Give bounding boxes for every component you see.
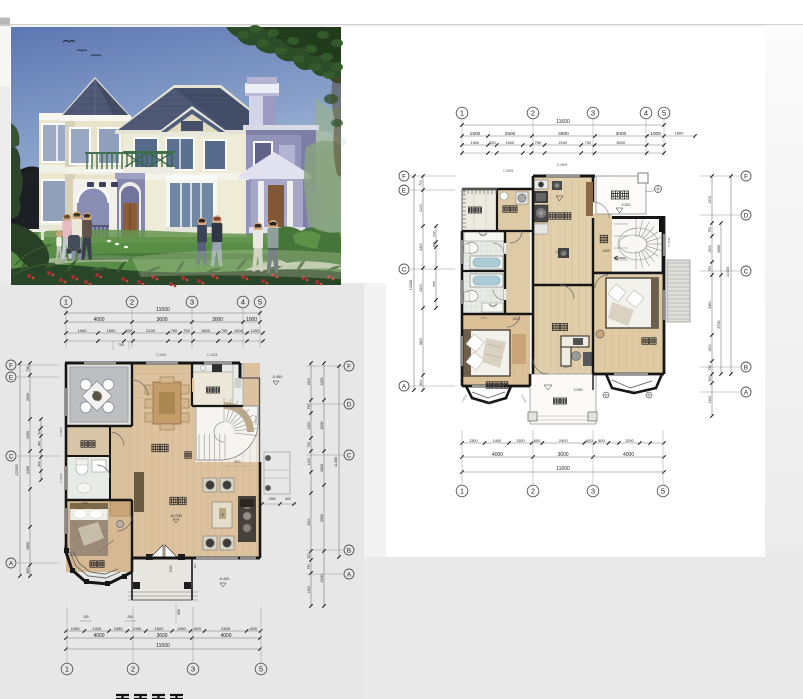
svg-text:±0.000: ±0.000 xyxy=(170,514,182,518)
svg-text:3.530: 3.530 xyxy=(574,388,583,392)
svg-text:1860: 1860 xyxy=(320,464,324,472)
svg-text:C-1518: C-1518 xyxy=(667,237,671,247)
svg-text:1500: 1500 xyxy=(307,422,311,430)
svg-text:-0.450: -0.450 xyxy=(219,577,230,581)
svg-text:2: 2 xyxy=(130,298,134,307)
svg-text:2100: 2100 xyxy=(559,140,568,145)
svg-text:500: 500 xyxy=(307,553,311,559)
svg-text:3: 3 xyxy=(591,109,595,118)
svg-text:930: 930 xyxy=(432,231,436,236)
svg-text:C-0815: C-0815 xyxy=(59,473,63,483)
svg-text:12200: 12200 xyxy=(409,280,413,291)
svg-text:800: 800 xyxy=(598,438,605,443)
svg-text:3600: 3600 xyxy=(156,633,167,639)
svg-text:4000: 4000 xyxy=(492,452,503,458)
svg-text:3800: 3800 xyxy=(26,542,30,550)
svg-text:5: 5 xyxy=(258,298,262,307)
svg-text:11600: 11600 xyxy=(156,307,170,313)
svg-text:3450: 3450 xyxy=(708,301,712,309)
svg-text:F: F xyxy=(402,173,406,180)
svg-text:1900: 1900 xyxy=(307,586,311,594)
svg-text:250: 250 xyxy=(83,615,89,619)
svg-text:750: 750 xyxy=(183,328,190,333)
svg-text:5: 5 xyxy=(661,487,665,496)
svg-text:750: 750 xyxy=(535,140,542,145)
svg-text:3000: 3000 xyxy=(320,422,324,430)
svg-text:2: 2 xyxy=(131,665,135,674)
svg-text:C-1518: C-1518 xyxy=(207,353,218,357)
svg-text:600: 600 xyxy=(177,609,181,615)
svg-text:500: 500 xyxy=(489,140,496,145)
svg-text:750: 750 xyxy=(307,564,311,570)
svg-text:F: F xyxy=(347,363,351,370)
svg-text:1: 1 xyxy=(65,665,69,674)
svg-text:2300: 2300 xyxy=(26,466,30,474)
svg-text:600: 600 xyxy=(285,497,291,501)
svg-text:1900: 1900 xyxy=(708,396,712,404)
svg-text:12200: 12200 xyxy=(14,464,19,476)
svg-text:1050: 1050 xyxy=(132,626,142,631)
svg-text:3: 3 xyxy=(190,298,194,307)
svg-text:B: B xyxy=(347,547,351,554)
svg-text:1500: 1500 xyxy=(505,140,514,145)
svg-text:600: 600 xyxy=(586,438,593,443)
svg-text:1200: 1200 xyxy=(625,438,634,443)
svg-text:3000: 3000 xyxy=(616,131,627,137)
svg-text:750: 750 xyxy=(307,404,311,410)
svg-text:C-1518: C-1518 xyxy=(254,415,258,425)
svg-text:1000: 1000 xyxy=(246,317,257,323)
svg-text:C: C xyxy=(744,268,749,275)
svg-text:4: 4 xyxy=(241,298,245,307)
svg-text:1800: 1800 xyxy=(675,131,685,136)
svg-text:1400: 1400 xyxy=(92,626,102,631)
svg-text:800: 800 xyxy=(419,380,423,386)
svg-text:750: 750 xyxy=(708,227,712,233)
svg-text:D: D xyxy=(744,212,749,219)
svg-text:D: D xyxy=(347,401,352,408)
svg-text:2400: 2400 xyxy=(559,438,568,443)
svg-text:C: C xyxy=(9,453,14,460)
svg-text:750: 750 xyxy=(221,328,228,333)
svg-text:C-1618: C-1618 xyxy=(485,401,494,405)
svg-text:500: 500 xyxy=(432,242,436,247)
svg-text:2100: 2100 xyxy=(146,328,156,333)
svg-text:E: E xyxy=(9,374,13,381)
svg-text:3600: 3600 xyxy=(156,317,167,323)
svg-text:B: B xyxy=(744,364,748,371)
svg-text:3000: 3000 xyxy=(616,140,625,145)
svg-text:1500: 1500 xyxy=(471,140,480,145)
svg-text:C-0818: C-0818 xyxy=(59,427,63,437)
svg-text:1200: 1200 xyxy=(251,328,261,333)
svg-text:11600: 11600 xyxy=(156,643,170,649)
svg-text:1500: 1500 xyxy=(512,317,520,321)
svg-text:1050: 1050 xyxy=(114,626,124,631)
svg-text:3000: 3000 xyxy=(717,245,721,253)
svg-text:5: 5 xyxy=(259,665,263,674)
svg-text:4: 4 xyxy=(644,109,648,118)
svg-text:2100: 2100 xyxy=(419,204,423,212)
svg-text:500: 500 xyxy=(708,376,712,382)
svg-text:2200: 2200 xyxy=(320,378,324,386)
svg-text:600: 600 xyxy=(534,438,541,443)
svg-text:1: 1 xyxy=(460,109,464,118)
svg-text:5700: 5700 xyxy=(717,321,721,329)
svg-text:2400: 2400 xyxy=(320,575,324,583)
svg-text:1000: 1000 xyxy=(234,328,244,333)
svg-text:2500: 2500 xyxy=(505,131,516,137)
svg-text:2: 2 xyxy=(531,487,535,496)
svg-text:1400: 1400 xyxy=(492,438,501,443)
svg-text:700: 700 xyxy=(26,366,30,372)
svg-text:C: C xyxy=(347,452,352,459)
svg-text:800: 800 xyxy=(26,568,30,574)
svg-text:300: 300 xyxy=(193,563,197,568)
svg-text:2000: 2000 xyxy=(82,501,89,505)
svg-text:1500: 1500 xyxy=(169,565,173,572)
svg-text:F: F xyxy=(744,173,748,180)
svg-text:3600: 3600 xyxy=(558,131,569,137)
svg-text:-0.450: -0.450 xyxy=(272,375,283,379)
svg-text:2400: 2400 xyxy=(307,518,311,526)
svg-text:11600: 11600 xyxy=(556,119,570,125)
svg-text:11600: 11600 xyxy=(556,466,570,472)
svg-text:1500: 1500 xyxy=(201,328,211,333)
svg-text:MEM: MEM xyxy=(563,367,568,369)
svg-text:11400: 11400 xyxy=(334,457,338,467)
svg-text:750: 750 xyxy=(708,365,712,371)
svg-text:900: 900 xyxy=(37,441,41,446)
svg-text:1: 1 xyxy=(460,487,464,496)
svg-text:800: 800 xyxy=(194,626,201,631)
svg-text:750: 750 xyxy=(171,328,178,333)
svg-text:1200: 1200 xyxy=(307,458,311,466)
svg-text:4000: 4000 xyxy=(623,452,634,458)
svg-text:560: 560 xyxy=(125,328,132,333)
svg-text:1000: 1000 xyxy=(650,131,661,137)
svg-text:3: 3 xyxy=(191,665,195,674)
svg-text:850: 850 xyxy=(432,281,436,286)
svg-text:2400: 2400 xyxy=(221,626,231,631)
svg-text:11400: 11400 xyxy=(726,267,730,277)
svg-text:250: 250 xyxy=(127,615,133,619)
svg-text:1500: 1500 xyxy=(154,626,164,631)
svg-text:C-0505: C-0505 xyxy=(503,169,514,173)
svg-text:750: 750 xyxy=(307,442,311,448)
svg-text:3800: 3800 xyxy=(419,338,423,346)
svg-text:3: 3 xyxy=(591,487,595,496)
svg-text:2300: 2300 xyxy=(419,284,423,292)
svg-text:2200: 2200 xyxy=(307,378,311,386)
svg-text:3.520: 3.520 xyxy=(622,203,631,207)
svg-text:1500: 1500 xyxy=(107,328,117,333)
svg-text:5: 5 xyxy=(662,109,666,118)
svg-text:2700: 2700 xyxy=(708,196,712,204)
svg-text:750: 750 xyxy=(585,140,592,145)
svg-text:2400: 2400 xyxy=(419,243,423,251)
svg-text:800: 800 xyxy=(250,626,257,631)
svg-text:C-0505: C-0505 xyxy=(557,163,568,167)
svg-text:1940: 1940 xyxy=(78,328,88,333)
svg-text:1380: 1380 xyxy=(268,497,276,501)
svg-text:700: 700 xyxy=(419,180,423,186)
svg-text:1500: 1500 xyxy=(233,460,240,464)
svg-text:C-1518: C-1518 xyxy=(156,353,167,357)
svg-text:1200: 1200 xyxy=(602,249,610,253)
svg-text:1050: 1050 xyxy=(177,626,187,631)
svg-text:500: 500 xyxy=(37,429,41,434)
svg-text:3600: 3600 xyxy=(557,452,568,458)
svg-text:1300: 1300 xyxy=(516,438,525,443)
svg-text:4000: 4000 xyxy=(93,317,104,323)
svg-text:2600: 2600 xyxy=(26,393,30,401)
svg-text:3900: 3900 xyxy=(320,514,324,522)
svg-text:4000: 4000 xyxy=(220,633,231,639)
svg-text:1050: 1050 xyxy=(71,626,81,631)
svg-text:4000: 4000 xyxy=(93,633,104,639)
svg-text:1: 1 xyxy=(64,298,68,307)
svg-text:C: C xyxy=(402,266,407,273)
svg-text:750: 750 xyxy=(118,343,124,347)
svg-text:1500: 1500 xyxy=(708,344,712,352)
svg-text:1900: 1900 xyxy=(26,431,30,439)
svg-text:1500: 1500 xyxy=(470,131,481,137)
svg-text:750: 750 xyxy=(708,266,712,272)
svg-text:2500: 2500 xyxy=(481,316,488,320)
svg-text:3000: 3000 xyxy=(212,317,223,323)
svg-text:2: 2 xyxy=(531,109,535,118)
svg-text:1500: 1500 xyxy=(708,245,712,253)
svg-text:1300: 1300 xyxy=(469,438,478,443)
svg-text:E: E xyxy=(402,187,406,194)
svg-text:F: F xyxy=(9,362,13,369)
svg-text:800: 800 xyxy=(37,461,41,466)
svg-text:3.600: 3.600 xyxy=(556,250,565,254)
